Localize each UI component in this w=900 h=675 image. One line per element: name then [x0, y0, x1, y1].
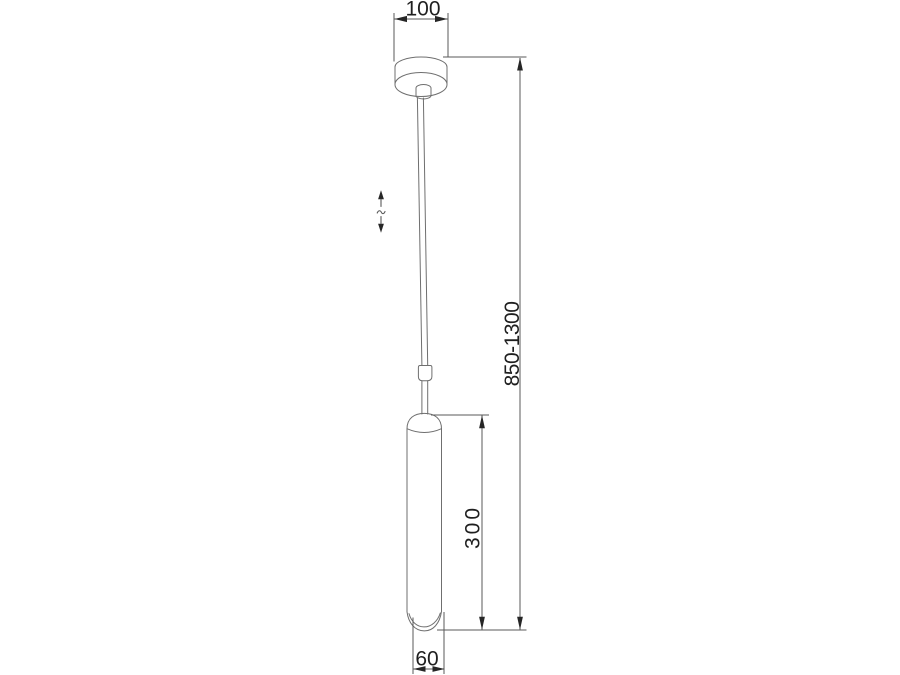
arrow-body-bottom-icon [479, 617, 485, 630]
adjust-down-arrow-icon [378, 224, 384, 233]
arrow-overall-top-icon [517, 58, 523, 71]
drawing-canvas: 100 850-1300 300 60 [0, 0, 900, 675]
dim-overall-height-label: 850-1300 [501, 302, 524, 387]
canopy-top-arc [395, 57, 447, 67]
adjust-up-arrow-icon [378, 190, 384, 199]
suspension-cable-upper [417, 98, 427, 366]
arrow-body-top-icon [479, 415, 485, 428]
height-adjustable-icon [377, 190, 385, 232]
arrow-overall-bottom-icon [517, 617, 523, 630]
lamp-body-outline [407, 413, 442, 631]
lamp-object [395, 57, 447, 631]
adjust-tilde-mark [377, 211, 385, 214]
dim-body-height-label: 300 [462, 505, 485, 549]
dim-canopy-width-label: 100 [405, 0, 440, 21]
lamp-bottom-diffuser-arc [409, 613, 440, 627]
suspension-cable-lower [422, 381, 428, 414]
lamp-body-seam [407, 429, 442, 433]
dim-body-diameter-label: 60 [415, 648, 438, 671]
pendant-lamp-technical-drawing: 100 850-1300 300 60 [0, 0, 900, 675]
cord-adjuster [418, 366, 432, 381]
height-adjustable-shaft [377, 199, 385, 223]
